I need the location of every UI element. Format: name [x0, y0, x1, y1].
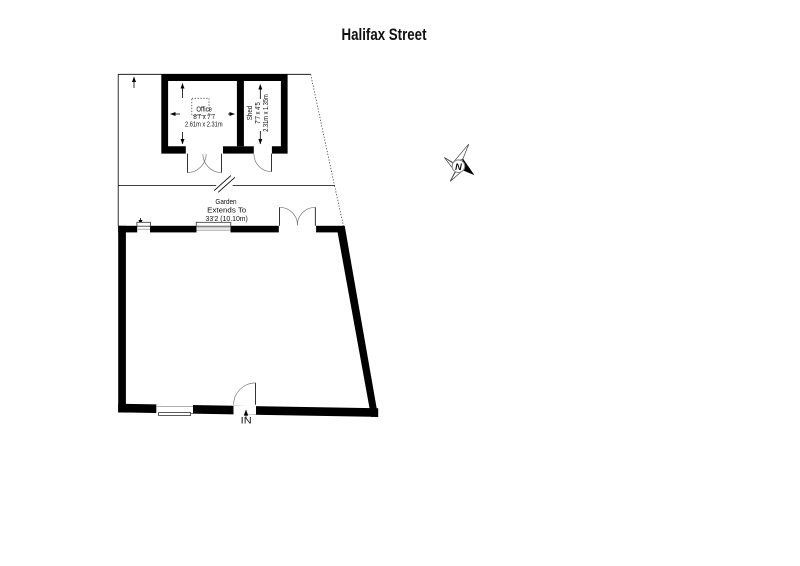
svg-text:2.61m x 2.31m: 2.61m x 2.31m	[185, 120, 223, 129]
svg-text:Halifax Street: Halifax Street	[342, 26, 427, 44]
svg-text:33'2 (10.10m): 33'2 (10.10m)	[206, 214, 248, 223]
svg-text:N: N	[455, 162, 463, 173]
svg-text:IN: IN	[241, 416, 252, 426]
svg-text:2.31m x 1.35m: 2.31m x 1.35m	[261, 94, 270, 132]
